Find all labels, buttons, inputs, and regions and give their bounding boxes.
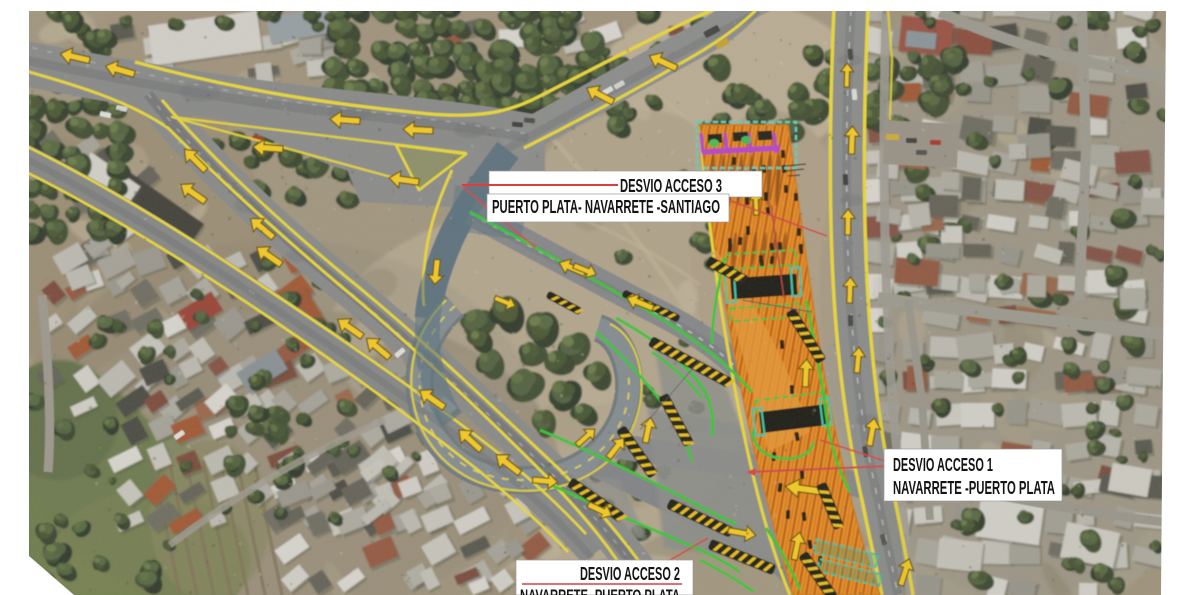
svg-text:PUERTO PLATA- NAVARRETE -SANTI: PUERTO PLATA- NAVARRETE -SANTIAGO [492,197,720,217]
svg-text:DESVIO ACCESO 3: DESVIO ACCESO 3 [620,176,722,196]
svg-text:DESVIO ACCESO 2: DESVIO ACCESO 2 [580,564,680,584]
svg-text:NAVARRETE -PUERTO PLATA: NAVARRETE -PUERTO PLATA [520,586,680,595]
svg-text:DESVIO ACCESO 1: DESVIO ACCESO 1 [893,455,993,475]
svg-text:NAVARRETE -PUERTO PLATA: NAVARRETE -PUERTO PLATA [893,478,1055,498]
